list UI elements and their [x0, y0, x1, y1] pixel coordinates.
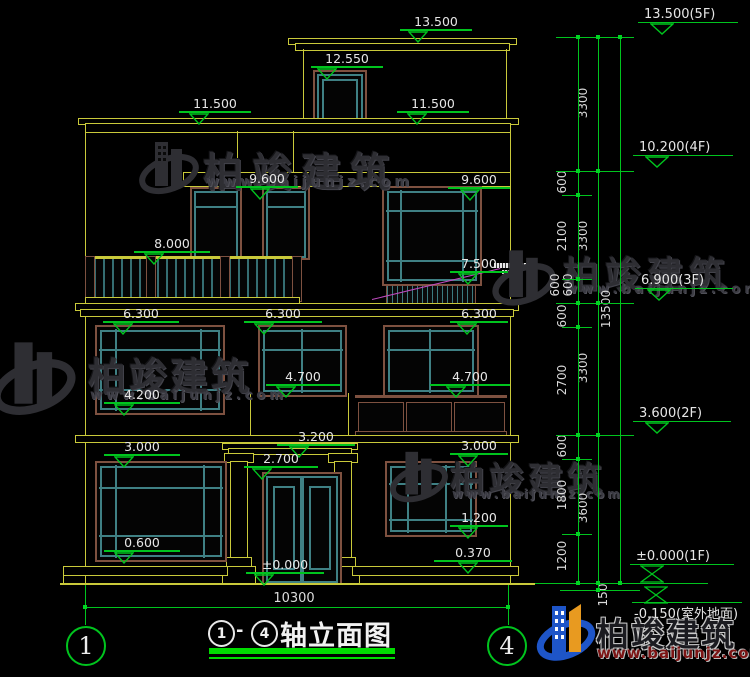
floor-level-text: 6.900(3F): [641, 273, 704, 288]
dim-tick: [596, 169, 600, 173]
elevation-value: 6.300: [103, 306, 179, 321]
elevation-value: 12.550: [311, 51, 383, 66]
axis-bubble-1: 1: [66, 626, 106, 666]
title-dash: -: [236, 620, 243, 641]
dim-tick: [576, 277, 580, 281]
dim-chain-line: [620, 37, 621, 583]
dim-tick: [576, 532, 580, 536]
dim-tick: [576, 193, 580, 197]
4f-railing-pillar: [220, 256, 230, 302]
elevation-value: 8.000: [134, 236, 210, 251]
penthouse-wall-left: [303, 49, 304, 118]
watermark-url: www.baijunjz.com: [452, 487, 623, 501]
elevation-label: 4.700: [430, 369, 510, 399]
elevation-label: 9.600: [236, 171, 298, 201]
dim-chain-value: 600: [555, 294, 569, 338]
dim-tick-line: [556, 171, 634, 172]
ground-dim-line: [85, 607, 509, 608]
elevation-label: 13.500: [400, 14, 472, 44]
dim-tick-line: [560, 590, 640, 591]
dim-tick: [576, 581, 580, 585]
axis-bubble-4: 4: [487, 626, 527, 666]
dim-chain-value: 13500: [599, 287, 613, 331]
dim-tick: [576, 433, 580, 437]
2f-railing-panel: [358, 402, 404, 432]
floor-level-text: 10.200(4F): [639, 140, 710, 155]
dim-chain-value: 2100: [555, 214, 569, 258]
dim-tick: [576, 457, 580, 461]
elevation-label: 8.000: [134, 236, 210, 266]
title-axis-circle-4: 4: [251, 620, 278, 647]
elevation-value: 4.200: [104, 387, 180, 402]
elevation-label: 1.200: [450, 510, 508, 540]
elevation-value: 3.000: [450, 438, 508, 453]
elevation-value: 2.700: [244, 451, 318, 466]
elevation-label: 2.700: [244, 451, 318, 481]
dim-chain-value: 600: [555, 160, 569, 204]
floor-level-text: ±0.000(1F): [636, 549, 710, 564]
plinth-edge: [63, 566, 64, 583]
elevation-drawing-canvas: 柏竣建筑 www.baijunjz.com 柏竣建筑 www.baijunjz.…: [0, 0, 750, 677]
elevation-label: 9.600: [448, 172, 510, 202]
4f-railing-pillar: [292, 256, 302, 302]
dim-tick-line: [556, 303, 634, 304]
floor-level-text: 13.500(5F): [644, 7, 715, 22]
elevation-value: 9.600: [448, 172, 510, 187]
floor-level-text: 3.600(2F): [639, 406, 702, 421]
penthouse-roof-band: [295, 43, 510, 51]
wall-left: [85, 131, 86, 583]
elevation-label: 3.000: [450, 438, 508, 468]
elevation-value: 0.600: [104, 535, 180, 550]
title-underline-thick: [209, 648, 395, 654]
elevation-label: 0.370: [434, 545, 512, 575]
elevation-value: 3.200: [277, 429, 355, 444]
elevation-value: 4.700: [430, 369, 510, 384]
dim-chain-value: 2700: [555, 358, 569, 402]
elevation-label: 3.000: [104, 439, 180, 469]
elevation-label: 6.300: [103, 306, 179, 336]
elevation-value: 4.700: [266, 369, 340, 384]
2f-railing-panel: [454, 402, 505, 432]
elevation-value: 6.300: [450, 306, 508, 321]
dim-tick: [596, 581, 600, 585]
elevation-value: ±0.000: [246, 557, 324, 572]
axis-number: 4: [499, 632, 514, 660]
elevation-value: 9.600: [236, 171, 298, 186]
floor-level-marker: 13.500(5F): [638, 7, 750, 47]
logo-building-icon: [536, 598, 598, 668]
title-axis-circle-1: 1: [208, 620, 235, 647]
dim-tick: [618, 581, 622, 585]
dim-tick: [596, 588, 600, 592]
4f-railing-pillar: [85, 256, 95, 302]
dim-chain-value: 600: [555, 424, 569, 468]
dim-tick: [596, 301, 600, 305]
elevation-value: 6.300: [244, 306, 322, 321]
title-axis-number: 4: [260, 626, 270, 642]
2f-railing-panel: [406, 402, 452, 432]
dim-tick: [576, 35, 580, 39]
wall-right: [510, 131, 511, 583]
elevation-value: 13.500: [400, 14, 472, 29]
penthouse-wall-right: [506, 49, 507, 118]
ground-dimension-text: 10300: [254, 591, 334, 606]
elevation-value: 11.500: [397, 96, 469, 111]
dim-tick: [596, 433, 600, 437]
elevation-label: 11.500: [397, 96, 469, 126]
elevation-label: 4.200: [104, 387, 180, 417]
elevation-label: ±0.000: [246, 557, 324, 587]
axis-number: 1: [78, 632, 93, 660]
dim-chain-value: 1200: [555, 534, 569, 578]
elevation-label: 7.500: [450, 256, 508, 286]
title-axis-number: 1: [217, 626, 227, 642]
elevation-value: 11.500: [179, 96, 251, 111]
elevation-label: 4.700: [266, 369, 340, 399]
elevation-value: 0.370: [434, 545, 512, 560]
dim-chain-line: [578, 37, 579, 583]
plinth-left: [63, 566, 228, 576]
floor-level-marker: 6.900(3F): [635, 273, 750, 313]
elevation-label: 12.550: [311, 51, 383, 81]
elevation-value: 7.500: [450, 256, 508, 271]
dim-tick: [576, 301, 580, 305]
dim-tick: [506, 605, 510, 609]
dim-tick: [576, 325, 580, 329]
dim-tick: [596, 35, 600, 39]
dim-tick: [576, 169, 580, 173]
elevation-value: 1.200: [450, 510, 508, 525]
elevation-label: 11.500: [179, 96, 251, 126]
dim-tick-line: [556, 37, 634, 38]
elevation-label: 6.300: [450, 306, 508, 336]
floor-level-marker: 10.200(4F): [633, 140, 750, 180]
dim-tick: [83, 605, 87, 609]
floor-level-marker: 3.600(2F): [633, 406, 750, 446]
elevation-label: 0.600: [104, 535, 180, 565]
dim-tick-line: [556, 435, 634, 436]
title-underline-thin: [209, 657, 395, 659]
dim-chain-line: [598, 37, 599, 590]
dim-chain-value: 1800: [555, 473, 569, 517]
watermark-building-icon: [386, 446, 452, 510]
elevation-label: 6.300: [244, 306, 322, 336]
watermark-building-icon: [137, 136, 201, 202]
dim-tick: [618, 35, 622, 39]
logo-url-text: www.baijunjz.com: [597, 644, 750, 662]
watermark-building-icon: [0, 334, 82, 426]
elevation-value: 3.000: [104, 439, 180, 454]
